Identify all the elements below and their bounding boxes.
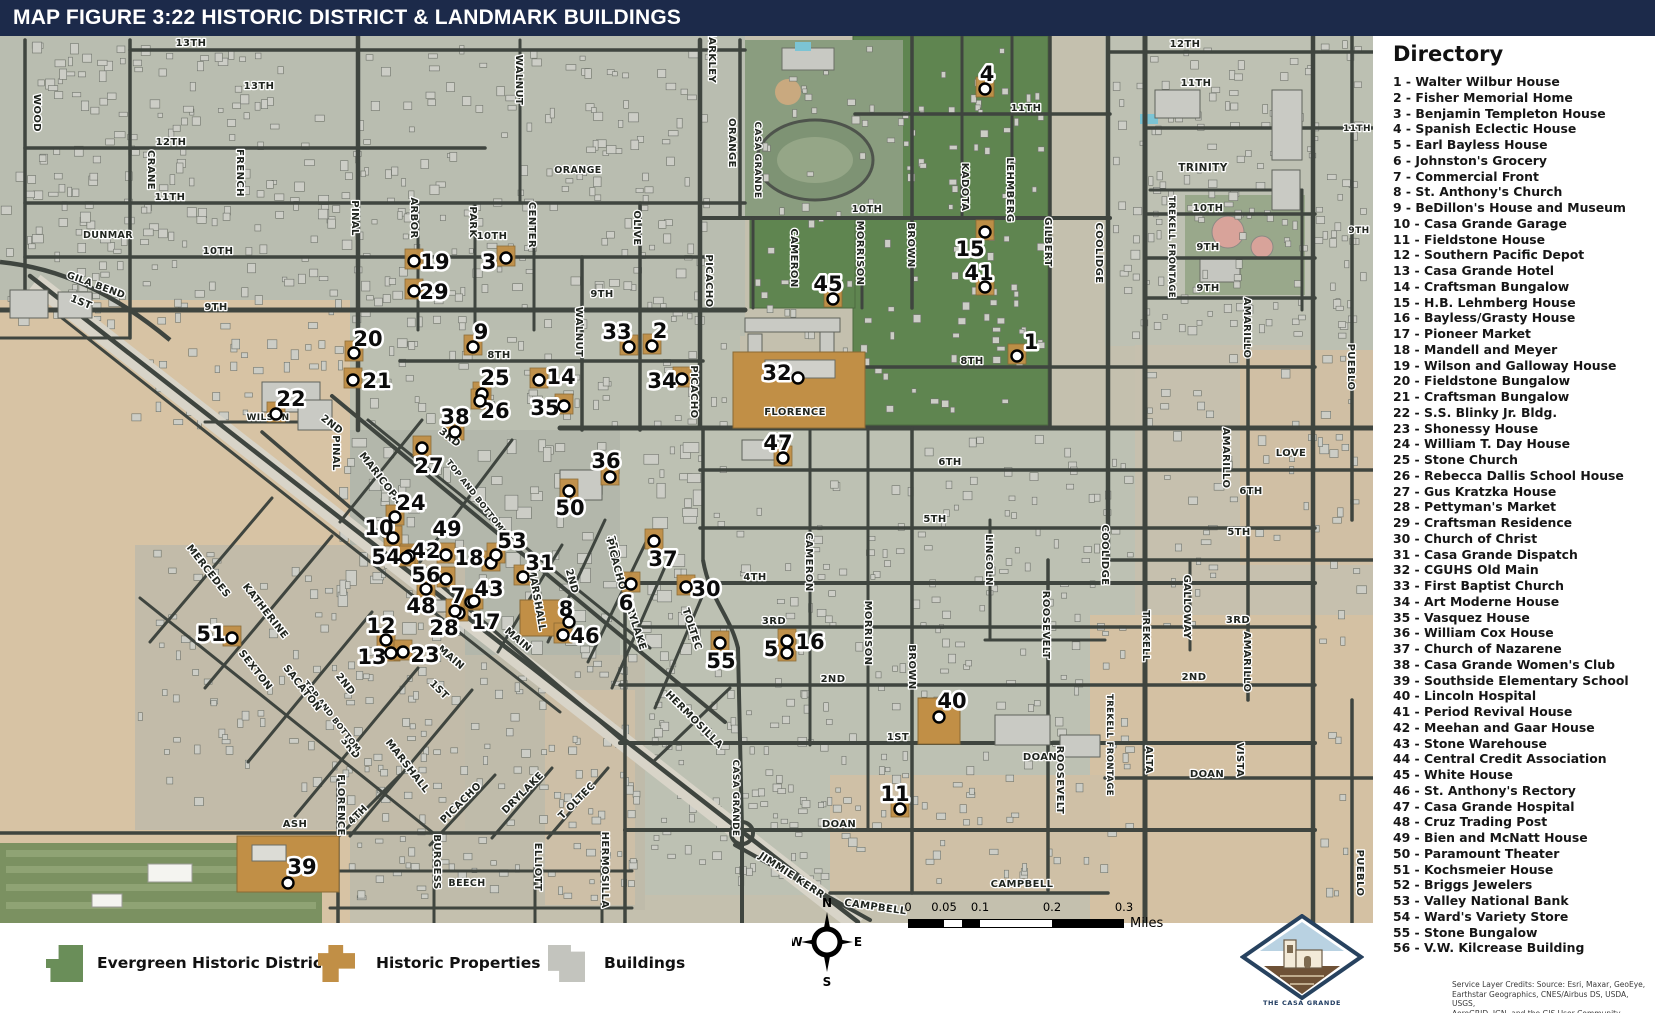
- street-label: DOAN: [822, 819, 856, 830]
- street-label: ARBOR: [408, 197, 419, 238]
- svg-text:11: 11: [880, 782, 909, 806]
- svg-text:34: 34: [647, 369, 676, 393]
- street-label: PINAL: [330, 435, 341, 471]
- street-label: PUEBLO: [1354, 850, 1365, 897]
- directory-entry-29: 29 - Craftsman Residence: [1393, 515, 1655, 531]
- street-label: HERMOSILLA: [599, 832, 610, 909]
- directory-entry-28: 28 - Pettyman's Market: [1393, 499, 1655, 515]
- directory-entry-36: 36 - William Cox House: [1393, 625, 1655, 641]
- svg-text:31: 31: [525, 551, 554, 575]
- directory-entry-47: 47 - Casa Grande Hospital: [1393, 799, 1655, 815]
- svg-text:32: 32: [762, 361, 791, 385]
- directory-entry-21: 21 - Craftsman Bungalow: [1393, 389, 1655, 405]
- directory-entry-17: 17 - Pioneer Market: [1393, 326, 1655, 342]
- svg-text:3: 3: [482, 250, 497, 274]
- svg-text:56: 56: [411, 563, 440, 587]
- directory-entry-48: 48 - Cruz Trading Post: [1393, 814, 1655, 830]
- street-label: 9TH: [204, 302, 227, 313]
- street-label: TREKELL FRONTAGE: [1166, 196, 1176, 298]
- street-label: WOOD: [31, 94, 42, 132]
- street-label: CAMERON: [788, 228, 799, 287]
- street-label: FRENCH: [234, 149, 245, 197]
- svg-text:17: 17: [471, 610, 500, 634]
- svg-text:9: 9: [474, 320, 489, 344]
- street-label: 11TH: [155, 192, 186, 203]
- street-label: CAMERON: [803, 532, 814, 591]
- street-label: 8TH: [960, 356, 983, 367]
- street-label: 9TH: [590, 289, 613, 300]
- street-label: 12TH: [1170, 39, 1201, 50]
- svg-text:6: 6: [619, 591, 634, 615]
- svg-text:5: 5: [764, 637, 779, 661]
- street-label: TREKELL: [1140, 610, 1151, 662]
- street-label: WALNUT: [513, 55, 524, 105]
- svg-text:E: E: [854, 935, 862, 949]
- svg-text:30: 30: [691, 577, 720, 601]
- svg-text:15: 15: [955, 237, 984, 261]
- street-label: CASA GRANDE: [752, 122, 762, 199]
- street-label: ALTA: [1143, 746, 1154, 774]
- street-label: BEECH: [448, 878, 485, 889]
- scale-unit: Miles: [1130, 916, 1163, 931]
- service-layer-credits: Service Layer Credits: Source: Esri, Max…: [1452, 980, 1652, 1013]
- svg-text:13: 13: [357, 645, 386, 669]
- svg-text:16: 16: [795, 630, 824, 654]
- directory-entry-8: 8 - St. Anthony's Church: [1393, 184, 1655, 200]
- legend-swatch-buildings: [548, 945, 585, 982]
- street-label: 8TH: [487, 350, 510, 361]
- street-label: TREKELL FRONTAGE: [1104, 694, 1114, 796]
- directory-entry-15: 15 - H.B. Lehmberg House: [1393, 295, 1655, 311]
- street-label: DOAN: [1023, 752, 1057, 763]
- scale-bar: 00.050.10.20.3Miles: [900, 900, 1200, 942]
- directory-entry-23: 23 - Shonessy House: [1393, 421, 1655, 437]
- street-label: 2ND: [1182, 672, 1207, 683]
- street-label: BURGESS: [431, 834, 442, 889]
- svg-text:21: 21: [362, 369, 391, 393]
- directory-entry-45: 45 - White House: [1393, 767, 1655, 783]
- svg-text:41: 41: [964, 261, 993, 285]
- page-title: MAP FIGURE 3:22 HISTORIC DISTRICT & LAND…: [0, 6, 681, 30]
- street-label: ROOSEVELT: [1040, 591, 1051, 659]
- directory-entry-43: 43 - Stone Warehouse: [1393, 736, 1655, 752]
- street-label: AMARILLO: [1241, 632, 1252, 693]
- directory-entry-24: 24 - William T. Day House: [1393, 436, 1655, 452]
- street-label: DOAN: [1190, 769, 1224, 780]
- directory-entry-14: 14 - Craftsman Bungalow: [1393, 279, 1655, 295]
- svg-text:42: 42: [411, 539, 440, 563]
- directory-entry-4: 4 - Spanish Eclectic House: [1393, 121, 1655, 137]
- svg-text:22: 22: [276, 387, 305, 411]
- directory-entry-3: 3 - Benjamin Templeton House: [1393, 106, 1655, 122]
- svg-text:25: 25: [480, 366, 509, 390]
- directory-entry-30: 30 - Church of Christ: [1393, 531, 1655, 547]
- directory-entry-40: 40 - Lincoln Hospital: [1393, 688, 1655, 704]
- directory-entry-34: 34 - Art Moderne House: [1393, 594, 1655, 610]
- street-label: PICACHO: [688, 365, 699, 418]
- svg-text:19: 19: [420, 250, 449, 274]
- svg-text:1: 1: [1024, 330, 1039, 354]
- directory-entry-6: 6 - Johnston's Grocery: [1393, 153, 1655, 169]
- page: MAP FIGURE 3:22 HISTORIC DISTRICT & LAND…: [0, 0, 1655, 1013]
- street-label: GALLOWAY: [1181, 575, 1192, 640]
- logo-text: THE CASA GRANDE: [1240, 999, 1364, 1007]
- svg-text:48: 48: [406, 594, 435, 618]
- street-label: AMARILLO: [1241, 298, 1252, 359]
- directory-entry-44: 44 - Central Credit Association: [1393, 751, 1655, 767]
- svg-text:18: 18: [454, 546, 483, 570]
- street-label: BROWN: [905, 222, 916, 267]
- directory-entry-37: 37 - Church of Nazarene: [1393, 641, 1655, 657]
- street-label: LEHMBERG: [1004, 157, 1015, 222]
- directory-list: 1 - Walter Wilbur House2 - Fisher Memori…: [1373, 74, 1655, 956]
- directory-entry-54: 54 - Ward's Variety Store: [1393, 909, 1655, 925]
- svg-text:35: 35: [530, 396, 559, 420]
- street-label: 9TH: [1196, 283, 1219, 294]
- directory-entry-7: 7 - Commercial Front: [1393, 169, 1655, 185]
- directory-entry-38: 38 - Casa Grande Women's Club: [1393, 657, 1655, 673]
- directory-entry-10: 10 - Casa Grande Garage: [1393, 216, 1655, 232]
- svg-text:46: 46: [570, 624, 599, 648]
- street-label: 1ST: [887, 732, 909, 743]
- scale-bar-frame: [908, 919, 1124, 928]
- street-label: COOLIDGE: [1093, 223, 1104, 284]
- scale-tick: 0.2: [1043, 900, 1061, 914]
- street-label: 9TH: [1196, 242, 1219, 253]
- directory-entry-20: 20 - Fieldstone Bungalow: [1393, 373, 1655, 389]
- svg-text:20: 20: [353, 327, 382, 351]
- svg-text:2: 2: [653, 319, 668, 343]
- street-label: ORANGE: [554, 165, 601, 176]
- street-label: ORANGE: [726, 118, 737, 168]
- casa-grande-logo-icon: [1240, 914, 1364, 1000]
- directory-entry-2: 2 - Fisher Memorial Home: [1393, 90, 1655, 106]
- street-label: BROWN: [906, 644, 917, 689]
- street-label: 5TH: [1227, 527, 1250, 538]
- street-label: 3RD: [1226, 615, 1250, 626]
- street-label: WILSON: [246, 413, 289, 423]
- svg-text:50: 50: [555, 496, 584, 520]
- street-label: ASH: [283, 819, 308, 830]
- directory-entry-53: 53 - Valley National Bank: [1393, 893, 1655, 909]
- svg-text:12: 12: [366, 614, 395, 638]
- directory-entry-25: 25 - Stone Church: [1393, 452, 1655, 468]
- directory-entry-35: 35 - Vasquez House: [1393, 610, 1655, 626]
- svg-text:53: 53: [497, 529, 526, 553]
- legend-label-buildings: Buildings: [604, 954, 685, 972]
- street-label: 13TH: [244, 81, 275, 92]
- street-label: VISTA: [1234, 743, 1245, 777]
- directory-entry-46: 46 - St. Anthony's Rectory: [1393, 783, 1655, 799]
- street-label: PINAL: [349, 200, 360, 236]
- directory-entry-52: 52 - Briggs Jewelers: [1393, 877, 1655, 893]
- directory-entry-55: 55 - Stone Bungalow: [1393, 925, 1655, 941]
- street-label: OLIVE: [631, 210, 642, 245]
- directory-entry-11: 11 - Fieldstone House: [1393, 232, 1655, 248]
- street-label: WALNUT: [573, 307, 584, 357]
- street-label: 9TH: [1348, 226, 1369, 236]
- directory-entry-33: 33 - First Baptist Church: [1393, 578, 1655, 594]
- svg-text:S: S: [823, 975, 832, 989]
- directory-entry-16: 16 - Bayless/Grasty House: [1393, 310, 1655, 326]
- street-label: CRANE: [145, 150, 156, 190]
- svg-text:4: 4: [980, 62, 995, 86]
- directory-entry-19: 19 - Wilson and Galloway House: [1393, 358, 1655, 374]
- scale-tick: 0.3: [1115, 900, 1133, 914]
- directory-entry-9: 9 - BeDillon's House and Museum: [1393, 200, 1655, 216]
- compass-rose-icon: NSWE: [792, 894, 862, 990]
- svg-text:W: W: [792, 935, 803, 949]
- scale-tick: 0: [904, 900, 911, 914]
- directory-entry-51: 51 - Kochsmeier House: [1393, 862, 1655, 878]
- directory-entry-1: 1 - Walter Wilbur House: [1393, 74, 1655, 90]
- street-label: 11TH: [1343, 124, 1371, 134]
- street-label: CAMPBELL: [991, 879, 1054, 890]
- svg-text:24: 24: [396, 491, 425, 515]
- svg-text:54: 54: [371, 545, 400, 569]
- svg-text:33: 33: [602, 320, 631, 344]
- directory-entry-49: 49 - Bien and McNatt House: [1393, 830, 1655, 846]
- svg-text:28: 28: [429, 616, 458, 640]
- directory-entry-42: 42 - Meehan and Gaar House: [1393, 720, 1655, 736]
- street-label: 2ND: [821, 674, 846, 685]
- svg-text:51: 51: [196, 622, 225, 646]
- street-label: MARKLEY: [706, 36, 717, 84]
- directory-entry-31: 31 - Casa Grande Dispatch: [1393, 547, 1655, 563]
- svg-text:47: 47: [763, 431, 792, 455]
- street-label: 11TH: [1011, 103, 1042, 114]
- street-label: FLORENCE: [764, 407, 826, 418]
- street-label: DUNMAR: [83, 230, 133, 241]
- street-label: 10TH: [852, 204, 883, 215]
- directory-entry-12: 12 - Southern Pacific Depot: [1393, 247, 1655, 263]
- legend-label-properties: Historic Properties: [376, 954, 540, 972]
- directory-heading: Directory: [1393, 42, 1655, 66]
- street-label: 13TH: [176, 38, 207, 49]
- svg-text:14: 14: [546, 365, 575, 389]
- map-canvas[interactable]: 13TH13TH12TH11TH10TH9THDUNMARWOODCRANEFR…: [0, 36, 1373, 923]
- street-label: ELLIOTT: [532, 843, 543, 891]
- svg-text:49: 49: [432, 517, 461, 541]
- street-label: 10TH: [1193, 203, 1224, 214]
- directory-entry-27: 27 - Gus Kratzka House: [1393, 484, 1655, 500]
- street-label: MORRISON: [854, 221, 865, 286]
- directory-entry-39: 39 - Southside Elementary School: [1393, 673, 1655, 689]
- svg-text:40: 40: [937, 689, 966, 713]
- directory-entry-26: 26 - Rebecca Dallis School House: [1393, 468, 1655, 484]
- street-label: CASA GRANDE: [730, 760, 740, 837]
- directory-entry-56: 56 - V.W. Kilcrease Building: [1393, 940, 1655, 956]
- svg-text:23: 23: [410, 643, 439, 667]
- svg-text:45: 45: [813, 272, 842, 296]
- street-label: FLORENCE: [335, 774, 346, 836]
- svg-text:36: 36: [591, 449, 620, 473]
- svg-text:27: 27: [414, 454, 443, 478]
- street-label: 6TH: [1239, 486, 1262, 497]
- street-label: 5TH: [923, 514, 946, 525]
- directory-entry-41: 41 - Period Revival House: [1393, 704, 1655, 720]
- street-label: LOVE: [1276, 448, 1306, 459]
- svg-text:29: 29: [419, 280, 448, 304]
- street-label: PUEBLO: [1345, 344, 1356, 391]
- street-label: PICACHO: [703, 254, 714, 307]
- scale-tick: 0.1: [971, 900, 989, 914]
- legend-swatch-properties: [318, 945, 355, 982]
- street-label: 12TH: [156, 137, 187, 148]
- svg-text:37: 37: [648, 547, 677, 571]
- directory-entry-50: 50 - Paramount Theater: [1393, 846, 1655, 862]
- map-marker-26[interactable]: 26: [475, 396, 510, 424]
- street-label: 6TH: [938, 457, 961, 468]
- svg-text:7: 7: [451, 584, 466, 608]
- street-label: CENTER: [526, 202, 537, 248]
- svg-text:N: N: [822, 896, 832, 910]
- street-label: AMARILLO: [1220, 428, 1231, 489]
- street-label: COOLIDGE: [1099, 525, 1110, 586]
- legend-swatch-district: [46, 945, 83, 982]
- street-label: LINCOLN: [983, 534, 994, 586]
- scale-tick: 0.05: [931, 900, 957, 914]
- street-label: 11TH: [1181, 78, 1212, 89]
- directory-entry-18: 18 - Mandell and Meyer: [1393, 342, 1655, 358]
- street-label: 10TH: [203, 246, 234, 257]
- directory-entry-5: 5 - Earl Bayless House: [1393, 137, 1655, 153]
- directory-entry-22: 22 - S.S. Blinky Jr. Bldg.: [1393, 405, 1655, 421]
- street-label: GILBERT: [1042, 217, 1053, 267]
- street-label: 10TH: [477, 231, 508, 242]
- svg-text:55: 55: [706, 649, 735, 673]
- street-label: MORRISON: [862, 601, 873, 666]
- svg-text:39: 39: [287, 855, 316, 879]
- legend-label-district: Evergreen Historic District: [97, 954, 330, 972]
- title-bar: MAP FIGURE 3:22 HISTORIC DISTRICT & LAND…: [0, 0, 1655, 36]
- directory-entry-32: 32 - CGUHS Old Main: [1393, 562, 1655, 578]
- directory-panel: Directory 1 - Walter Wilbur House2 - Fis…: [1373, 36, 1655, 1013]
- street-label: 4TH: [743, 572, 766, 583]
- directory-entry-13: 13 - Casa Grande Hotel: [1393, 263, 1655, 279]
- street-label: 3RD: [762, 616, 786, 627]
- street-label: TRINITY: [1178, 162, 1227, 174]
- street-label: KADOTA: [959, 163, 970, 211]
